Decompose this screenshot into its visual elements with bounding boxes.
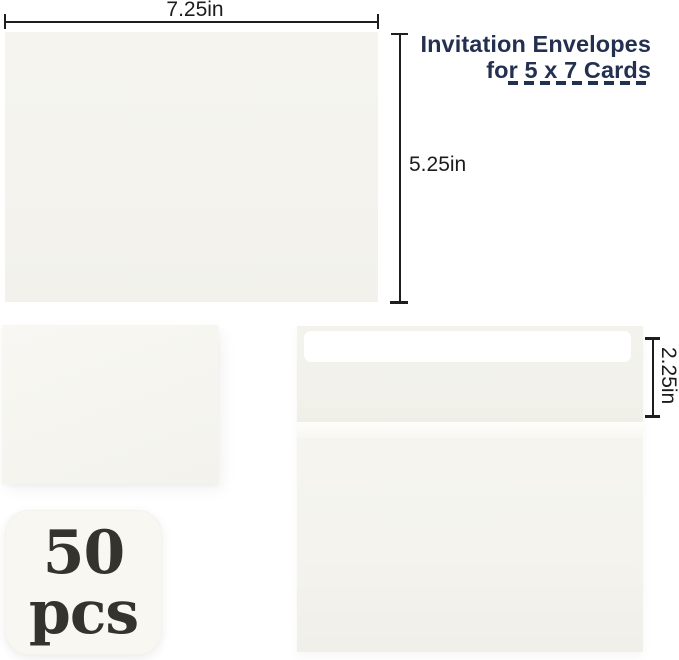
width-dimension-line [4, 21, 379, 23]
flap-dimension-line [652, 338, 654, 417]
quantity-unit: pcs [29, 583, 138, 643]
envelope-stack [2, 325, 218, 484]
quantity-count: 50 [43, 523, 125, 583]
title-dashed-underline [508, 81, 648, 85]
product-title-line2: for 5 x 7 Cards [420, 57, 651, 83]
height-dimension-line [399, 33, 401, 303]
product-image: 7.25in 5.25in Invitation Envelopes for 5… [0, 0, 679, 660]
product-title-line1: Invitation Envelopes [420, 31, 651, 57]
flap-fold-edge [297, 422, 643, 438]
height-dimension-end-cap [390, 301, 408, 304]
flap-dimension-end-cap [645, 415, 660, 418]
height-dimension-label: 5.25in [409, 154, 466, 176]
envelope-front [5, 32, 378, 302]
envelope-flap [297, 326, 643, 422]
envelope-back [297, 326, 643, 652]
width-dimension-label: 7.25in [140, 0, 250, 21]
product-title: Invitation Envelopes for 5 x 7 Cards [420, 31, 651, 83]
quantity-badge: 50 pcs [5, 510, 162, 655]
seal-strip [304, 331, 631, 362]
flap-dimension-label: 2.25in [657, 347, 679, 411]
width-dimension-end-cap [377, 14, 379, 29]
